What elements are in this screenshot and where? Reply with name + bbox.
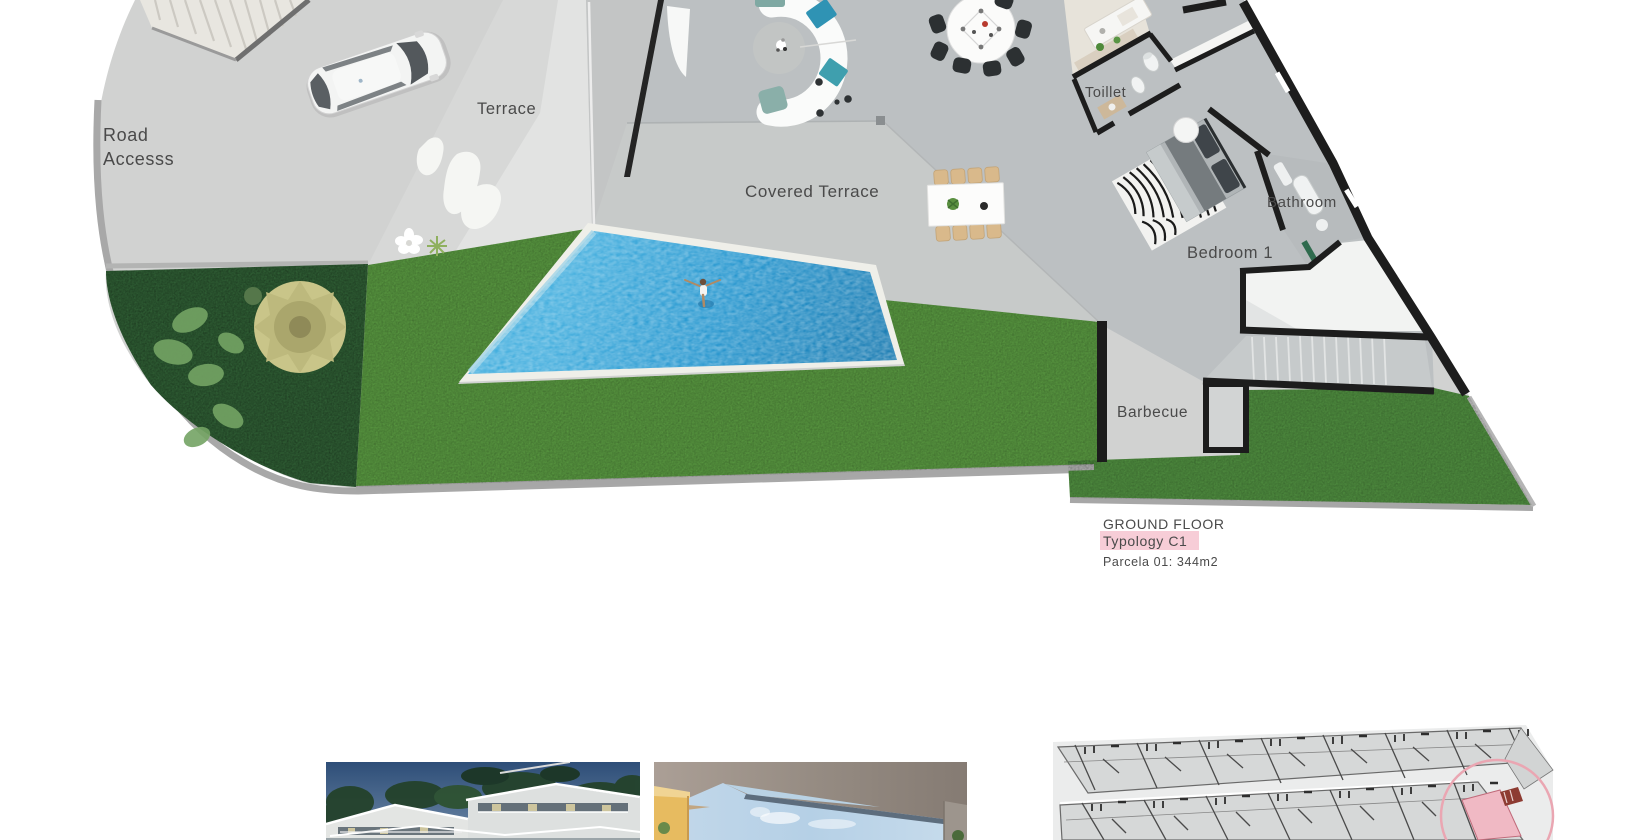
svg-text:Road: Road xyxy=(103,125,148,145)
svg-text:Bathroom: Bathroom xyxy=(1267,194,1337,211)
svg-text:Covered Terrace: Covered Terrace xyxy=(745,182,879,201)
svg-text:GROUND FLOOR: GROUND FLOOR xyxy=(1103,516,1225,532)
svg-text:Terrace: Terrace xyxy=(477,100,536,118)
svg-text:Accesss: Accesss xyxy=(103,149,174,169)
svg-text:Toillet: Toillet xyxy=(1085,85,1126,101)
svg-text:Parcela 01: 344m2: Parcela 01: 344m2 xyxy=(1103,555,1218,569)
svg-text:Bedroom 1: Bedroom 1 xyxy=(1187,244,1273,262)
svg-text:Typology C1: Typology C1 xyxy=(1103,533,1187,549)
svg-text:Barbecue: Barbecue xyxy=(1117,404,1188,421)
